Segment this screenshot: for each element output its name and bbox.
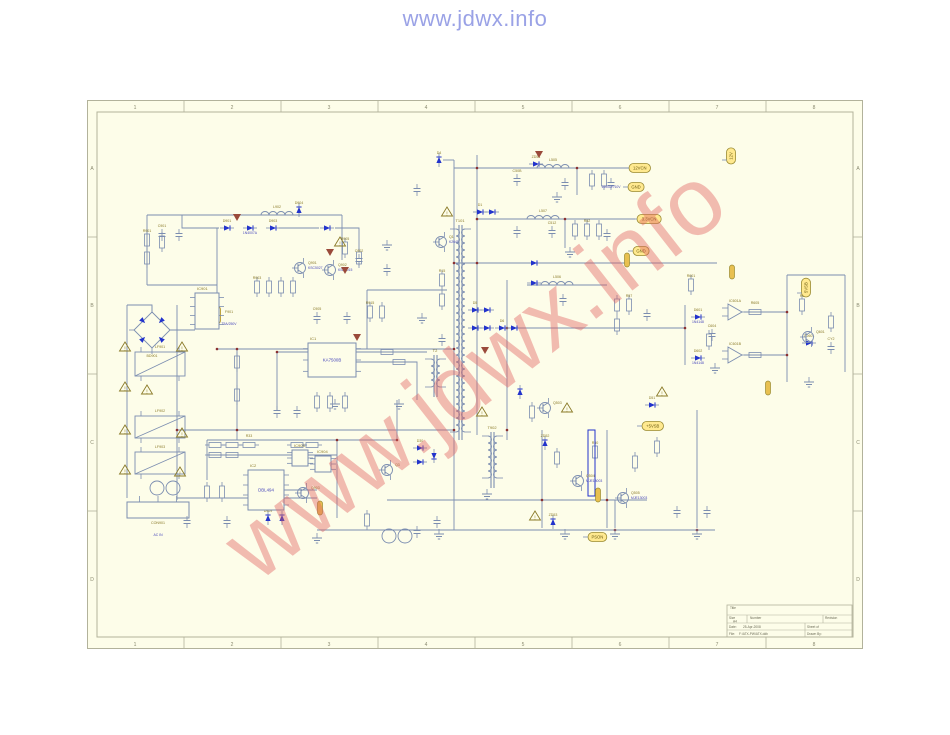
- title-block-text: File:: [729, 632, 735, 636]
- resistor-symbol: [220, 486, 225, 498]
- component-ref-label: CON901: [151, 521, 165, 525]
- resistor-symbol: [555, 452, 560, 464]
- diode-symbol: [324, 225, 330, 230]
- component-ref-label: CY2: [828, 337, 835, 341]
- column-label: 8: [813, 105, 816, 111]
- junction-dot: [476, 167, 479, 170]
- component-value-label: T5A/250V: [221, 322, 237, 326]
- warning-icon-mark: !: [124, 386, 125, 392]
- power-flag: 5VSB: [802, 278, 811, 297]
- component-ref-label: T2: [433, 348, 438, 353]
- component-ref-label: D5: [473, 301, 478, 305]
- diode-symbol: [477, 209, 483, 214]
- warning-icon-mark: !: [181, 346, 182, 352]
- power-flag-text: 12V: [729, 152, 734, 160]
- resistor-symbol: [597, 224, 602, 236]
- bridge-rectifier-symbol: [134, 312, 170, 348]
- gold-flag: [625, 253, 630, 267]
- diode-symbol: [417, 445, 423, 450]
- component-ref-label: D602: [694, 349, 703, 353]
- opamp-symbol: [728, 304, 742, 320]
- diode-symbol: [542, 440, 547, 446]
- opamp-symbol: [728, 347, 742, 363]
- resistor-symbol: [343, 242, 348, 254]
- inductor-symbol: [541, 282, 573, 286]
- component-ref-label: Q902: [338, 263, 347, 267]
- component-ref-label: IC1: [310, 336, 317, 341]
- junction-dot: [576, 167, 579, 170]
- component-ref-label: C902: [355, 249, 364, 253]
- junction-dot: [684, 327, 687, 330]
- junction-dot: [786, 354, 789, 357]
- component-ref-label: IC903: [294, 443, 305, 448]
- resistor-symbol: [209, 443, 221, 448]
- power-flag-text: 5VSB: [804, 282, 809, 293]
- title-block-text: Title: [730, 606, 736, 610]
- diode-symbol: [499, 325, 505, 330]
- component-ref-label: D901: [223, 219, 232, 223]
- column-label: 8: [813, 642, 816, 648]
- diode-symbol: [649, 402, 655, 407]
- top-watermark-text: www.jdwx.info: [0, 6, 950, 32]
- component-ref-label: IC601A: [729, 299, 742, 303]
- resistor-symbol: [689, 279, 694, 291]
- twin-coil-symbol: [150, 481, 164, 495]
- diode-symbol: [296, 207, 301, 213]
- component-ref-label: D904: [295, 201, 304, 205]
- resistor-symbol: [573, 224, 578, 236]
- component-value-label: MJE13003: [586, 479, 602, 483]
- component-ref-label: Q901: [308, 261, 317, 265]
- junction-dot: [453, 262, 456, 265]
- red-flag-icon: [233, 214, 241, 221]
- component-ref-label: C901: [158, 224, 167, 228]
- component-ref-label: T902: [487, 425, 497, 430]
- ic-symbol: [315, 456, 331, 472]
- component-value-label: 1000UF/10V: [601, 185, 621, 189]
- gold-flag: [730, 265, 735, 279]
- component-ref-label: Q504: [586, 474, 595, 478]
- column-label: 7: [716, 105, 719, 111]
- component-value-label: AC IN: [153, 533, 163, 537]
- row-label: B: [856, 303, 860, 309]
- warning-icon-mark: !: [179, 471, 180, 477]
- warning-icon-mark: !: [124, 469, 125, 475]
- component-ref-label: IC2: [250, 463, 257, 468]
- diode-symbol: [279, 515, 284, 521]
- diode-symbol: [417, 459, 423, 464]
- diode-symbol: [265, 515, 270, 521]
- resistor-symbol: [328, 396, 333, 408]
- column-label: 4: [425, 642, 428, 648]
- junction-dot: [216, 348, 219, 351]
- column-label: 2: [231, 105, 234, 111]
- power-flag: GND: [628, 183, 644, 192]
- vr-symbol: [588, 430, 595, 496]
- power-flag-text: 3.3VCN: [642, 217, 657, 222]
- component-ref-label: D1: [478, 203, 483, 207]
- power-flag: 3.3VCN: [637, 215, 661, 224]
- row-label: D: [856, 577, 860, 583]
- warning-icon-mark: !: [534, 515, 535, 521]
- title-block-text: Sheet of: [807, 625, 819, 629]
- component-ref-label: LF901: [155, 345, 165, 349]
- junction-dot: [606, 499, 609, 502]
- resistor-symbol: [440, 274, 445, 286]
- warning-icon-mark: !: [124, 346, 125, 352]
- diode-symbol: [517, 389, 522, 395]
- resistor-symbol: [315, 396, 320, 408]
- resistor-symbol: [365, 514, 370, 526]
- component-ref-label: R605: [751, 301, 760, 305]
- diode-symbol: [695, 314, 701, 319]
- column-label: 3: [328, 642, 331, 648]
- resistor-symbol: [291, 281, 296, 293]
- component-ref-label: Q503: [553, 401, 562, 405]
- column-label: 6: [619, 105, 622, 111]
- schematic-svg: 1122334455667788AABBCCDDTitleSizeA4Numbe…: [87, 100, 863, 649]
- component-value-label: MJE13003: [631, 496, 647, 500]
- wire: [127, 305, 152, 313]
- component-ref-label: D51: [649, 396, 656, 400]
- power-flag: PSON: [588, 533, 607, 542]
- junction-dot: [336, 439, 339, 442]
- component-ref-label: ZD52: [541, 434, 550, 438]
- gold-flag: [596, 488, 601, 502]
- resistor-symbol: [829, 316, 834, 328]
- ic-symbol: [195, 293, 219, 329]
- power-flag-text: GND: [636, 249, 645, 254]
- power-flag: GND: [633, 247, 649, 256]
- component-ref-label: L507: [539, 209, 547, 213]
- warning-icon-mark: !: [446, 211, 447, 217]
- junction-dot: [506, 429, 509, 432]
- inductor-symbol: [537, 165, 569, 169]
- connector-symbol: [127, 502, 189, 518]
- component-ref-label: R33: [246, 434, 253, 438]
- resistor-symbol: [707, 334, 712, 346]
- resistor-symbol: [267, 281, 272, 293]
- junction-dot: [176, 429, 179, 432]
- warning-icon-mark: !: [181, 432, 182, 438]
- title-block-text: 25-Apr-2008: [743, 625, 761, 629]
- component-ref-label: ZD53: [549, 513, 558, 517]
- junction-dot: [541, 499, 544, 502]
- component-ref-label: D4: [437, 151, 442, 155]
- component-value-label: 1N4007A: [243, 231, 258, 235]
- component-ref-label: Q601: [816, 330, 825, 334]
- resistor-symbol: [615, 319, 620, 331]
- component-ref-label: L902: [273, 205, 281, 209]
- component-ref-label: LF902: [155, 409, 165, 413]
- power-flag-text: 12VCN: [633, 166, 647, 171]
- component-value-label: KSC5027: [308, 266, 323, 270]
- twin-coil-symbol: [398, 529, 412, 543]
- resistor-symbol: [590, 174, 595, 186]
- row-label: A: [90, 166, 94, 172]
- diode-symbol: [431, 453, 436, 459]
- column-label: 5: [522, 642, 525, 648]
- component-ref-label: Q3: [395, 463, 400, 467]
- gold-flag: [318, 501, 323, 515]
- title-block-text: Number: [750, 616, 762, 620]
- resistor-symbol: [800, 299, 805, 311]
- power-flag: +5VSB: [642, 422, 664, 431]
- resistor-symbol: [530, 406, 535, 418]
- component-ref-label: R15: [439, 269, 446, 273]
- power-flag-text: PSON: [591, 535, 603, 540]
- wire: [277, 352, 308, 410]
- row-label: A: [856, 166, 860, 172]
- power-flag: 12VCN: [629, 164, 651, 173]
- component-ref-label: LF903: [155, 445, 165, 449]
- warning-icon-mark: !: [661, 391, 662, 397]
- resistor-symbol: [205, 486, 210, 498]
- component-ref-label: Q903: [311, 486, 320, 490]
- component-ref-label: IC901: [197, 286, 208, 291]
- resistor-symbol: [633, 456, 638, 468]
- diode-symbol: [489, 209, 495, 214]
- warning-icon-mark: !: [339, 241, 340, 247]
- diode-symbol: [550, 519, 555, 525]
- component-ref-label: R901: [143, 229, 152, 233]
- inductor-symbol: [527, 216, 559, 220]
- page: { "watermarks": { "top": "www.jdwx.info"…: [0, 0, 950, 735]
- component-value-label: KA7500B: [323, 358, 342, 363]
- title-block-text: Revision: [825, 616, 837, 620]
- resistor-symbol: [368, 306, 373, 318]
- twin-coil-symbol: [382, 529, 396, 543]
- power-flag: 12V: [727, 148, 736, 164]
- diode-symbol: [247, 225, 253, 230]
- diode-symbol: [695, 355, 701, 360]
- column-label: 5: [522, 105, 525, 111]
- resistor-symbol: [243, 443, 255, 448]
- inductor-symbol: [261, 212, 293, 216]
- component-ref-label: D601: [694, 308, 703, 312]
- diode-symbol: [484, 307, 490, 312]
- component-ref-label: C905: [313, 307, 322, 311]
- warning-icon-mark: !: [566, 407, 567, 413]
- component-value-label: 1N4148: [692, 320, 704, 324]
- component-ref-label: R57: [626, 294, 633, 298]
- component-ref-label: IC904: [317, 449, 328, 454]
- component-value-label: DBL494: [258, 488, 274, 493]
- wire: [182, 215, 219, 228]
- component-ref-label: D6: [500, 319, 505, 323]
- junction-dot: [276, 351, 279, 354]
- ic-symbol: [292, 450, 308, 466]
- component-ref-label: F901: [225, 310, 233, 314]
- component-ref-label: R52: [584, 219, 591, 223]
- resistor-symbol: [226, 443, 238, 448]
- red-flag-icon: [481, 347, 489, 354]
- column-label: 1: [134, 105, 137, 111]
- junction-dot: [236, 429, 239, 432]
- component-ref-label: C604: [708, 324, 717, 328]
- junction-dot: [476, 218, 479, 221]
- diode-symbol: [224, 225, 230, 230]
- resistor-symbol: [306, 443, 318, 448]
- component-ref-label: IC601B: [729, 342, 742, 346]
- junction-dot: [236, 348, 239, 351]
- power-flag-text: GND: [631, 185, 640, 190]
- component-ref-label: R601: [687, 274, 696, 278]
- column-label: 6: [619, 642, 622, 648]
- component-ref-label: C512: [548, 221, 557, 225]
- column-label: 4: [425, 105, 428, 111]
- sheet-inner-border: [97, 112, 853, 637]
- component-ref-label: T101: [455, 218, 465, 223]
- junction-dot: [396, 439, 399, 442]
- junction-dot: [476, 262, 479, 265]
- row-label: C: [856, 440, 860, 446]
- resistor-symbol: [279, 281, 284, 293]
- warning-icon-mark: !: [146, 389, 147, 395]
- junction-dot: [453, 348, 456, 351]
- column-label: 2: [231, 642, 234, 648]
- warning-icon-mark: !: [124, 429, 125, 435]
- resistor-symbol: [343, 396, 348, 408]
- component-ref-label: L505: [549, 158, 557, 162]
- diode-symbol: [270, 225, 276, 230]
- resistor-symbol: [380, 306, 385, 318]
- power-flag-text: +5VSB: [646, 424, 659, 429]
- wire: [356, 362, 417, 400]
- column-label: 3: [328, 105, 331, 111]
- resistor-symbol: [615, 299, 620, 311]
- diode-symbol: [511, 325, 517, 330]
- warning-icon-mark: !: [481, 411, 482, 417]
- resistor-symbol: [255, 281, 260, 293]
- junction-dot: [786, 311, 789, 314]
- diode-symbol: [484, 325, 490, 330]
- resistor-symbol: [627, 299, 632, 311]
- schematic-sheet: 1122334455667788AABBCCDDTitleSizeA4Numbe…: [87, 100, 863, 649]
- diode-symbol: [436, 157, 441, 163]
- component-ref-label: C50B: [513, 169, 523, 173]
- gold-flag: [766, 381, 771, 395]
- component-ref-label: Q505: [631, 491, 640, 495]
- component-ref-label: R915: [366, 301, 375, 305]
- title-block-text: A4: [733, 619, 737, 623]
- row-label: B: [90, 303, 94, 309]
- component-ref-label: R903: [253, 276, 262, 280]
- row-label: C: [90, 440, 94, 446]
- twin-coil-symbol: [166, 481, 180, 495]
- red-flag-icon: [326, 249, 334, 256]
- resistor-symbol: [655, 441, 660, 453]
- component-ref-label: Q1: [449, 235, 454, 239]
- component-ref-label: L506: [553, 275, 561, 279]
- title-block-text: Drawn By:: [807, 632, 822, 636]
- sheet-outer-border: [88, 101, 863, 649]
- red-flag-icon: [353, 334, 361, 341]
- component-ref-label: D903: [269, 219, 278, 223]
- junction-dot: [453, 429, 456, 432]
- title-block-text: Date:: [729, 625, 737, 629]
- diode-symbol: [531, 260, 537, 265]
- column-label: 7: [716, 642, 719, 648]
- component-ref-label: BD901: [147, 354, 158, 358]
- row-label: D: [90, 577, 94, 583]
- choke-symbol: [135, 352, 185, 376]
- component-value-label: 1N4148: [692, 361, 704, 365]
- resistor-symbol: [440, 294, 445, 306]
- title-block-text: F:\ATX-PW\ATX.ddb: [739, 632, 768, 636]
- resistor-symbol: [585, 224, 590, 236]
- component-ref-label: D30: [417, 439, 424, 443]
- junction-dot: [564, 218, 567, 221]
- column-label: 1: [134, 642, 137, 648]
